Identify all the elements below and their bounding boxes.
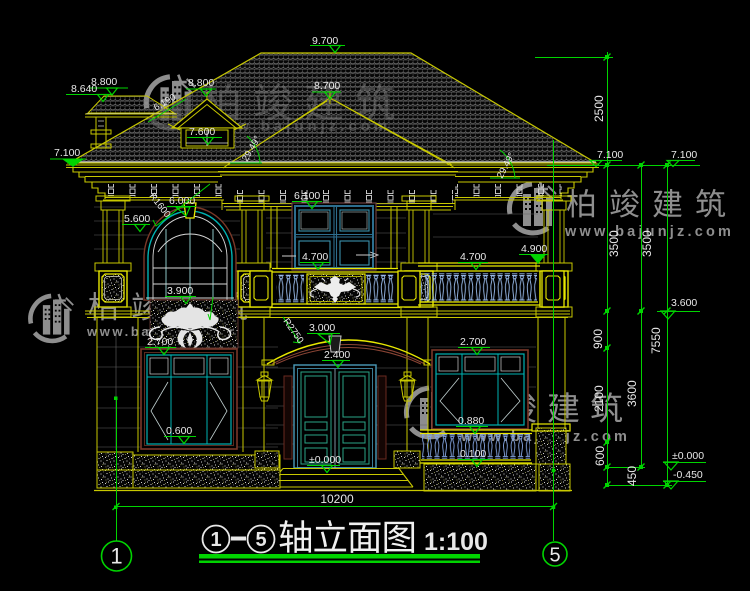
svg-text:600: 600 [593,446,607,466]
svg-text:3500: 3500 [607,230,621,257]
svg-text:0.880: 0.880 [458,415,484,427]
svg-text:2500: 2500 [592,95,606,122]
svg-text:1: 1 [110,544,122,569]
svg-text:3.000: 3.000 [309,322,335,334]
svg-text:2100: 2100 [592,385,606,412]
svg-text:7.600: 7.600 [189,126,215,138]
svg-text:4.700: 4.700 [302,251,328,263]
svg-text:7550: 7550 [649,327,663,354]
svg-text:±0.000: ±0.000 [309,454,341,466]
svg-text:2.400: 2.400 [324,349,350,361]
svg-text:8.640: 8.640 [71,83,97,95]
svg-text:0.100: 0.100 [460,448,486,460]
svg-text:900: 900 [591,329,605,349]
svg-text:1: 1 [210,529,221,551]
svg-text:-0.450: -0.450 [673,469,703,481]
svg-text:0.600: 0.600 [166,425,192,437]
svg-text:3.900: 3.900 [167,285,193,297]
svg-text:5.600: 5.600 [124,213,150,225]
svg-text:3600: 3600 [625,380,639,407]
svg-text:2.700: 2.700 [460,336,486,348]
svg-text:8.800: 8.800 [188,77,214,89]
svg-text:4.900: 4.900 [521,243,547,255]
svg-text:7.100: 7.100 [597,149,623,161]
svg-text:1:100: 1:100 [424,528,488,556]
svg-text:2.700: 2.700 [147,336,173,348]
svg-text:10200: 10200 [320,492,354,506]
svg-text:6.100: 6.100 [294,190,320,202]
svg-text:8.700: 8.700 [314,80,340,92]
svg-text:7.100: 7.100 [54,147,80,159]
svg-text:7.100: 7.100 [671,149,697,161]
svg-text:±0.000: ±0.000 [672,450,704,462]
svg-text:5: 5 [549,545,560,567]
svg-text:3500: 3500 [640,230,654,257]
svg-text:3.600: 3.600 [671,297,697,309]
svg-text:450: 450 [625,466,639,486]
svg-text:5: 5 [255,529,266,551]
svg-text:4.700: 4.700 [460,251,486,263]
